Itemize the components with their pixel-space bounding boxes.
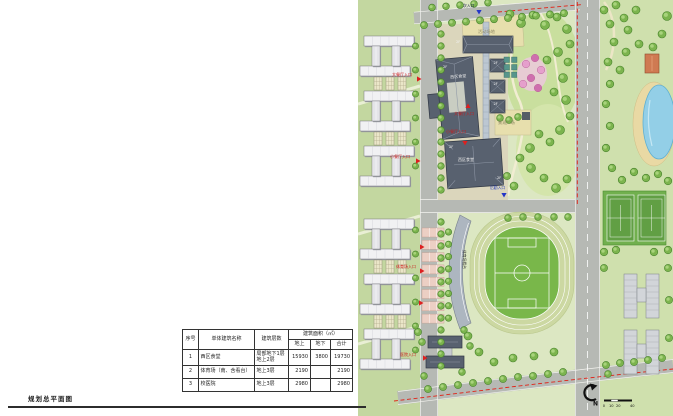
- svg-text:20: 20: [616, 404, 621, 408]
- col-header-name: 单体建筑名称: [199, 330, 255, 350]
- pond: [633, 82, 673, 166]
- col-header-above: 地上: [289, 340, 311, 350]
- canteen-name-label-2: 西区食堂: [458, 156, 474, 162]
- svg-text:2F: 2F: [494, 102, 498, 106]
- main-dining-entrance-label-2: 大餐厅入口: [454, 110, 474, 116]
- site-plan: 次入口 活动场地 景观广场 西区食堂 西区食堂 2F 2F 2F 2F 2F 2…: [358, 0, 673, 416]
- running-track: [470, 212, 574, 334]
- tennis-courts: [603, 191, 666, 245]
- logistics-entrance-label: 后勤入口: [490, 185, 505, 190]
- title-underline: [8, 406, 366, 408]
- small-dining-entrance-label-2: 小餐厅入口: [390, 153, 410, 159]
- hospital-entrance-label: 医院入口: [400, 351, 416, 357]
- table-row: 2 体育场（南、含看台） 地上3层 2190 2190: [183, 366, 353, 379]
- svg-text:40: 40: [630, 404, 635, 408]
- col-header-below: 地下: [311, 340, 331, 350]
- table-row: 1 西区食堂 局部地下1层 地上2层 15930 3800 19730: [183, 350, 353, 366]
- svg-text:2F: 2F: [443, 65, 447, 69]
- svg-text:2F: 2F: [456, 40, 460, 44]
- sheet-title: 规划总平面图: [28, 393, 73, 403]
- col-header-no: 序号: [183, 330, 199, 350]
- landscape-plaza-label: 景观广场: [498, 119, 515, 126]
- table-row: 3 校医院 地上3层 2980 2980: [183, 379, 353, 392]
- col-header-floors: 建筑层数: [255, 330, 289, 350]
- activity-ground-label: 活动场地: [478, 28, 496, 35]
- col-header-total: 合计: [331, 340, 353, 350]
- svg-text:N: N: [593, 401, 598, 408]
- building-area-table: 序号 单体建筑名称 建筑层数 建筑面积（㎡） 地上 地下 合计 1 西区食堂 局…: [182, 329, 353, 392]
- svg-text:10: 10: [609, 404, 614, 408]
- svg-text:2F: 2F: [449, 145, 453, 149]
- stadium-stand-label: 体育场看台: [462, 250, 467, 269]
- stadium-entrance-label: 体育场入口: [396, 263, 416, 269]
- svg-text:2F: 2F: [497, 176, 501, 180]
- svg-text:2F: 2F: [494, 82, 498, 86]
- small-dining-entrance-label: 小餐厅入口: [446, 128, 466, 134]
- main-dining-entrance-label: 大餐厅入口: [392, 71, 412, 77]
- col-header-area: 建筑面积（㎡）: [289, 330, 353, 340]
- secondary-entrance-label: 次入口: [463, 3, 475, 8]
- svg-text:2F: 2F: [494, 61, 498, 65]
